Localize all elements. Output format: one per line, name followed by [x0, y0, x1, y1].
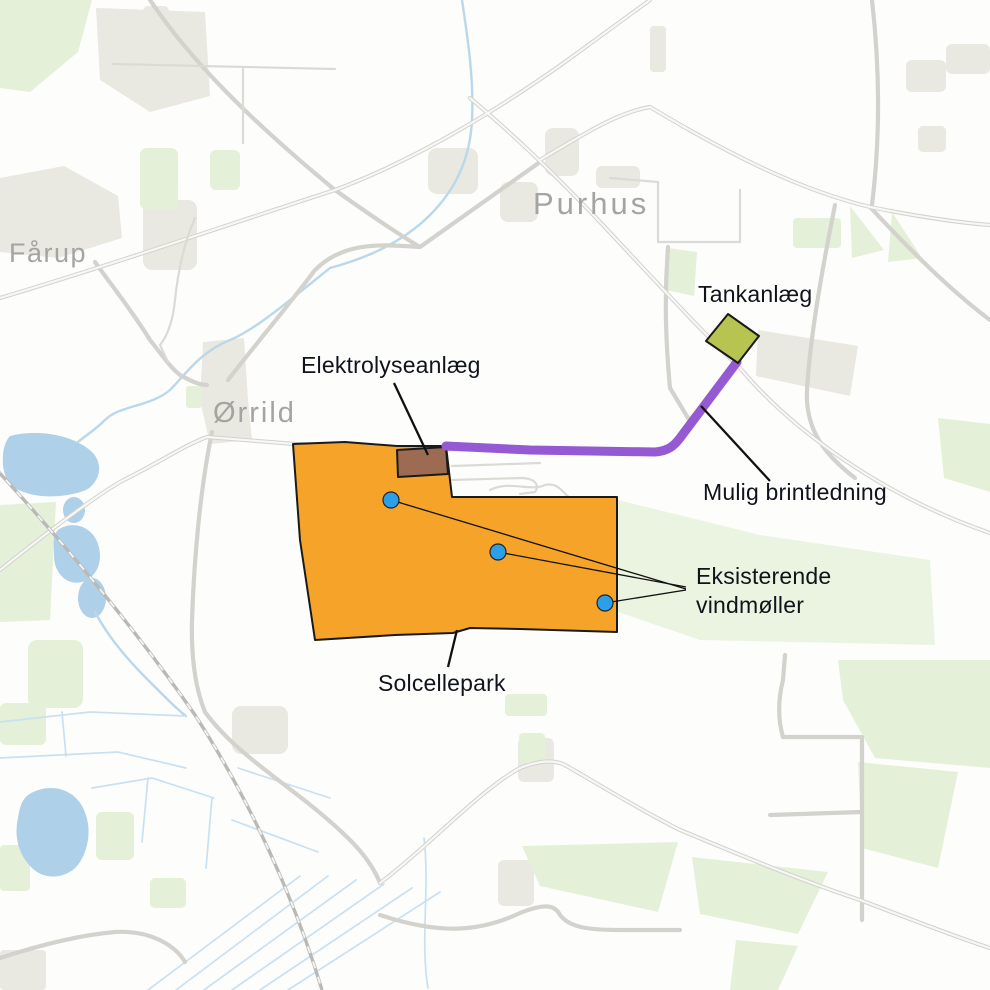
planning-map: Fårup Purhus Ørrild Tankanlæg Elektrolys…	[0, 0, 990, 990]
green-area	[505, 694, 547, 716]
green-area	[522, 842, 678, 912]
wind-turbine-marker	[597, 595, 613, 611]
minor-road	[452, 463, 540, 466]
water-channel	[232, 820, 318, 852]
green-area	[666, 248, 697, 296]
built-up-area	[906, 60, 946, 92]
roads	[0, 0, 990, 962]
water-channel	[62, 712, 66, 756]
green-area	[150, 878, 186, 908]
water-channel	[260, 888, 412, 990]
minor-roads	[113, 64, 740, 498]
green-area	[692, 857, 828, 934]
water-channel	[142, 778, 148, 842]
water-channel	[92, 778, 214, 798]
road	[779, 655, 785, 737]
solar-park-area	[293, 442, 617, 640]
wind-turbine-marker	[383, 492, 399, 508]
stream	[95, 612, 186, 716]
water-channel	[206, 798, 212, 868]
built-up-area	[650, 26, 666, 72]
green-area	[858, 762, 958, 868]
built-up-area	[946, 44, 990, 74]
green-area	[938, 418, 990, 492]
built-up-area	[0, 166, 122, 258]
water-channel	[204, 880, 356, 990]
roads-inner	[0, 0, 990, 948]
hydrogen-pipeline	[446, 362, 737, 452]
water-channel	[176, 876, 328, 990]
lake	[3, 433, 99, 497]
built-up-area	[232, 706, 288, 754]
wind-turbine-marker	[490, 544, 506, 560]
lake	[54, 525, 100, 583]
water-channel	[424, 838, 428, 988]
built-up-area	[596, 166, 640, 188]
solar-park-pointer-line	[448, 630, 457, 667]
road	[872, 0, 878, 205]
green-area	[96, 812, 134, 860]
water-channel	[232, 884, 384, 990]
built-up-area	[918, 126, 946, 152]
green-area	[0, 0, 92, 92]
green-area	[618, 500, 935, 645]
road	[228, 245, 420, 380]
green-area	[793, 218, 841, 248]
water-channel	[288, 892, 440, 990]
green-area	[730, 940, 798, 990]
lake	[78, 578, 106, 618]
green-area	[210, 150, 240, 190]
green-area	[0, 703, 46, 745]
water-channel	[0, 752, 186, 768]
green-areas	[0, 0, 990, 990]
tank-facility-area	[706, 314, 759, 363]
electrolysis-pointer-line	[394, 383, 428, 455]
pipeline-pointer-line	[701, 406, 770, 481]
minor-road	[490, 484, 570, 498]
map-canvas	[0, 0, 990, 990]
green-area	[28, 640, 83, 708]
green-area	[519, 733, 545, 763]
green-area	[140, 148, 178, 210]
electrolysis-plant-area	[397, 447, 448, 477]
built-up-area	[498, 860, 534, 906]
road	[770, 812, 862, 815]
green-area	[186, 386, 202, 408]
